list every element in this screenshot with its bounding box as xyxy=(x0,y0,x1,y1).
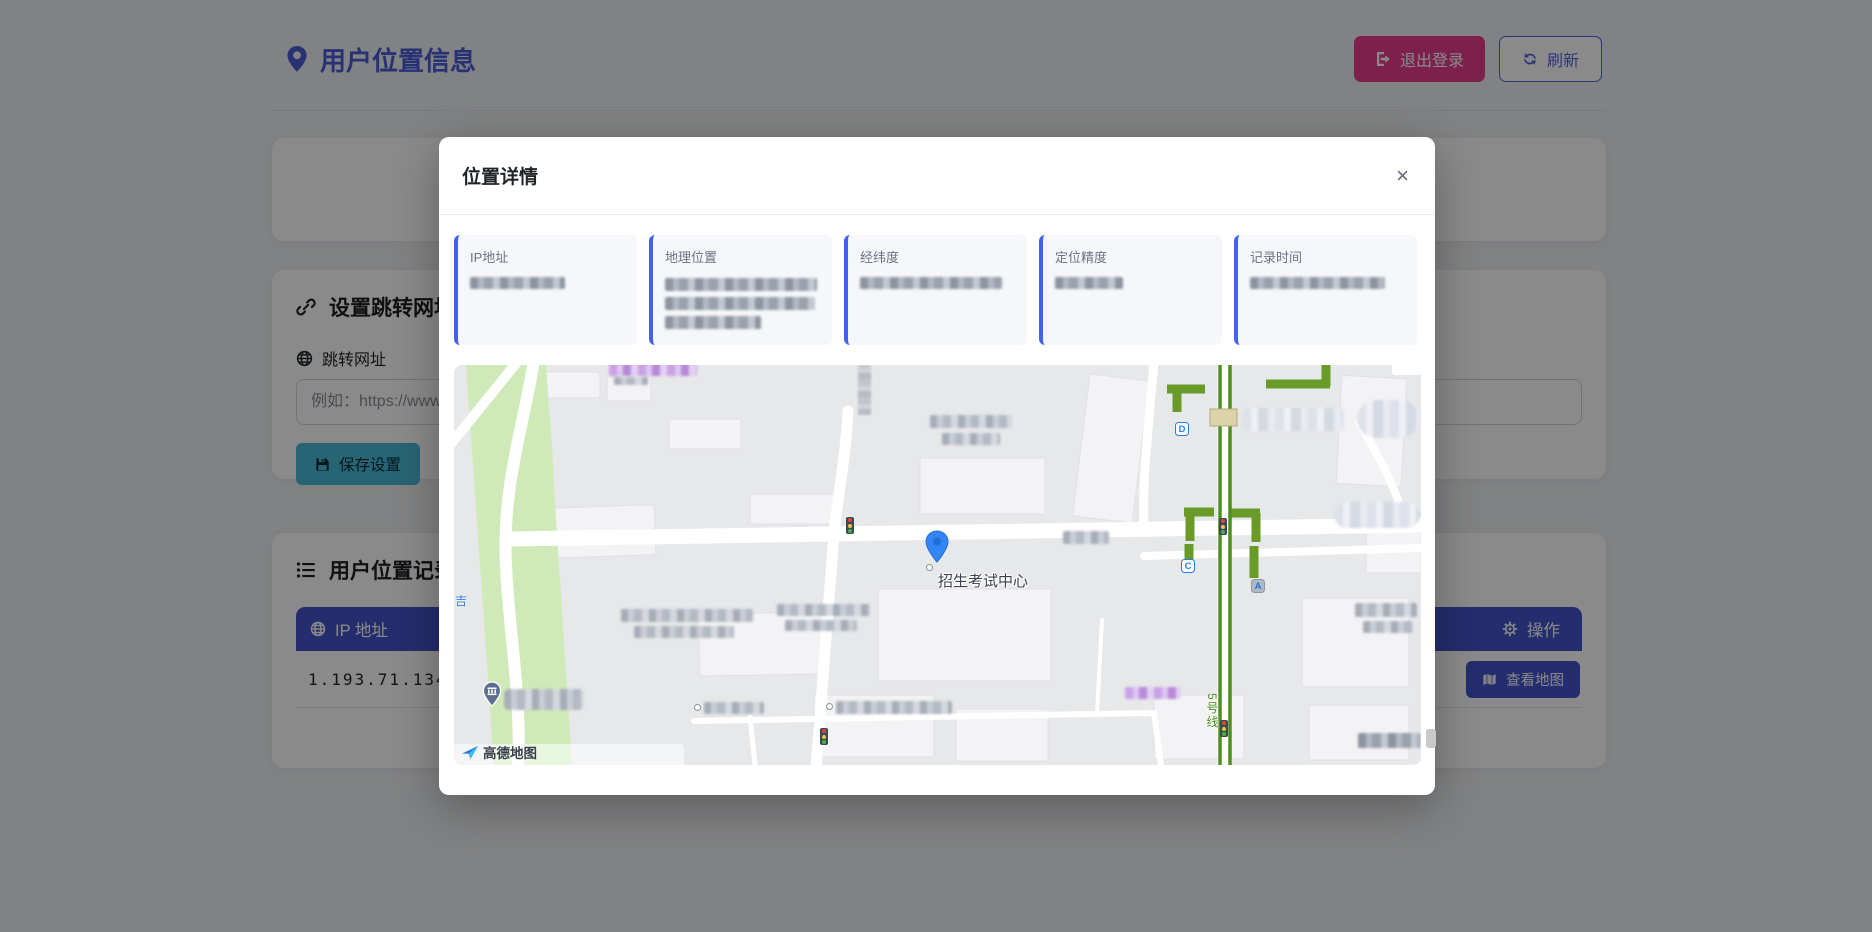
scrollbar-thumb[interactable] xyxy=(1426,729,1436,748)
poi-dot xyxy=(694,704,701,711)
redacted-map-label xyxy=(1125,687,1181,699)
redacted-map-label xyxy=(836,701,952,714)
modal-title: 位置详情 xyxy=(462,162,538,189)
close-icon[interactable]: × xyxy=(1396,165,1409,187)
redacted-value xyxy=(470,277,565,289)
info-card-latlng: 经纬度 xyxy=(844,235,1027,345)
traffic-light-icon xyxy=(820,728,828,745)
building-poi-pin xyxy=(482,681,502,712)
redacted-map-label xyxy=(1358,733,1420,748)
redacted-map-label xyxy=(614,377,648,385)
redacted-value xyxy=(665,278,817,291)
info-card-label: 经纬度 xyxy=(860,247,1015,266)
redacted-map-label xyxy=(621,609,753,622)
amap-logo: 高德地图 xyxy=(461,742,537,762)
modal-header: 位置详情 × xyxy=(439,137,1435,215)
info-card-label: 地理位置 xyxy=(665,247,820,266)
redacted-map-label xyxy=(942,433,1000,445)
info-card-time: 记录时间 xyxy=(1234,235,1417,345)
redacted-station-label xyxy=(1242,408,1344,431)
redacted-value xyxy=(665,316,761,329)
traffic-light-icon xyxy=(846,517,854,534)
redacted-map-label xyxy=(777,604,870,616)
location-details-modal: 位置详情 × IP地址 地理位置 经纬度 定位精度 记录时间 xyxy=(439,137,1435,795)
redacted-value xyxy=(1250,277,1385,289)
redacted-map-label xyxy=(785,620,857,631)
amap-plane-icon xyxy=(461,745,479,760)
redacted-value xyxy=(1055,277,1123,289)
metro-line-label: 5号线 xyxy=(1204,693,1221,730)
info-card-ip: IP地址 xyxy=(454,235,637,345)
redacted-map-label xyxy=(704,702,764,714)
info-card-label: 定位精度 xyxy=(1055,247,1210,266)
map-canvas[interactable]: 招生考试中心 D C A 5号线 吉 高德地图 xyxy=(454,365,1421,765)
location-marker[interactable] xyxy=(924,530,950,568)
metro-exit-c-badge: C xyxy=(1181,559,1195,573)
redacted-map-label xyxy=(1334,502,1420,528)
poi-dot xyxy=(826,703,833,710)
redacted-road-label xyxy=(858,365,871,415)
redacted-map-label xyxy=(634,626,734,638)
info-card-accuracy: 定位精度 xyxy=(1039,235,1222,345)
info-card-label: 记录时间 xyxy=(1250,247,1405,266)
info-card-geo: 地理位置 xyxy=(649,235,832,345)
redacted-poi-logo xyxy=(1357,400,1419,438)
redacted-map-label xyxy=(1355,603,1417,617)
redacted-map-label xyxy=(609,365,697,376)
street-name-label: 吉 xyxy=(455,592,467,609)
amap-attribution-text: 高德地图 xyxy=(483,742,537,762)
redacted-value xyxy=(860,277,1002,289)
metro-exit-d-badge: D xyxy=(1175,422,1189,436)
redacted-map-label xyxy=(930,415,1012,428)
redacted-road-label xyxy=(1063,531,1109,544)
redacted-value xyxy=(665,297,815,310)
info-card-label: IP地址 xyxy=(470,247,625,266)
traffic-light-icon xyxy=(1219,518,1227,535)
map-poi-label: 招生考试中心 xyxy=(938,570,1028,591)
metro-exit-a-badge: A xyxy=(1251,579,1265,593)
info-card-row: IP地址 地理位置 经纬度 定位精度 记录时间 xyxy=(439,215,1435,345)
traffic-light-icon xyxy=(1220,720,1228,737)
redacted-poi-label xyxy=(504,689,584,710)
redacted-map-label xyxy=(1363,621,1413,633)
